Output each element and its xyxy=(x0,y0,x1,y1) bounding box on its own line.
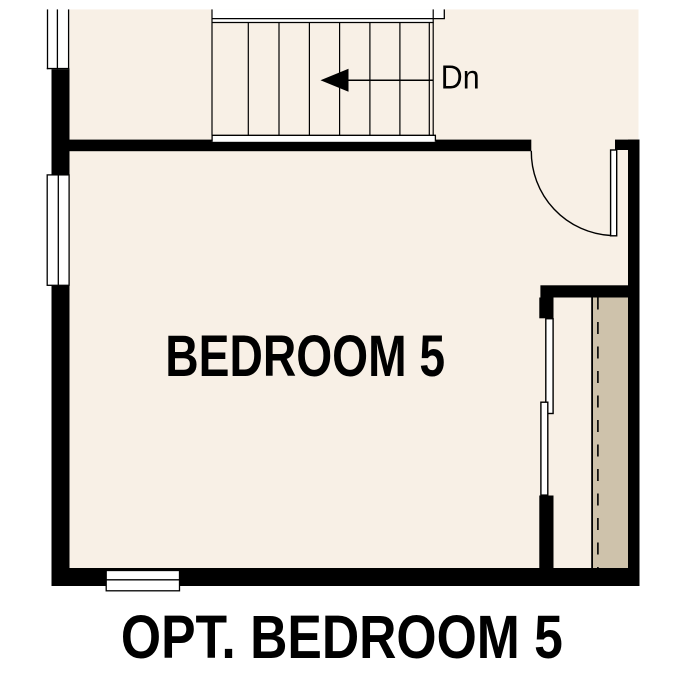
svg-text:BEDROOM 5: BEDROOM 5 xyxy=(165,324,445,389)
svg-text:OPT. BEDROOM 5: OPT. BEDROOM 5 xyxy=(121,604,563,672)
svg-text:Dn: Dn xyxy=(441,58,480,95)
